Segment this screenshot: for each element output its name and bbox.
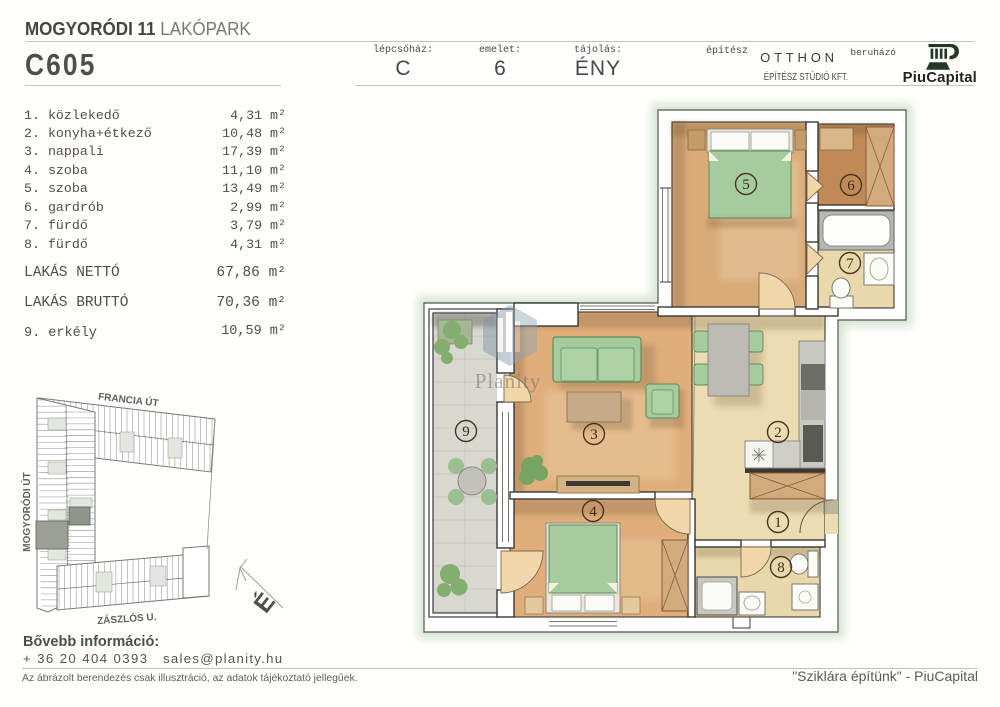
svg-text:1: 1 <box>774 515 782 531</box>
svg-text:9: 9 <box>462 424 470 440</box>
svg-text:3: 3 <box>590 427 598 443</box>
svg-text:2: 2 <box>774 425 782 441</box>
svg-text:8: 8 <box>777 560 785 576</box>
svg-text:Planity: Planity <box>475 369 542 393</box>
svg-text:MOGYORÓDI ÚT: MOGYORÓDI ÚT <box>20 472 33 551</box>
svg-text:7: 7 <box>846 256 854 272</box>
svg-text:5: 5 <box>742 177 750 193</box>
svg-text:4: 4 <box>589 504 597 520</box>
svg-text:6: 6 <box>847 178 855 194</box>
svg-text:É: É <box>248 587 281 618</box>
svg-text:ZÁSZLÓS U.: ZÁSZLÓS U. <box>97 610 157 627</box>
